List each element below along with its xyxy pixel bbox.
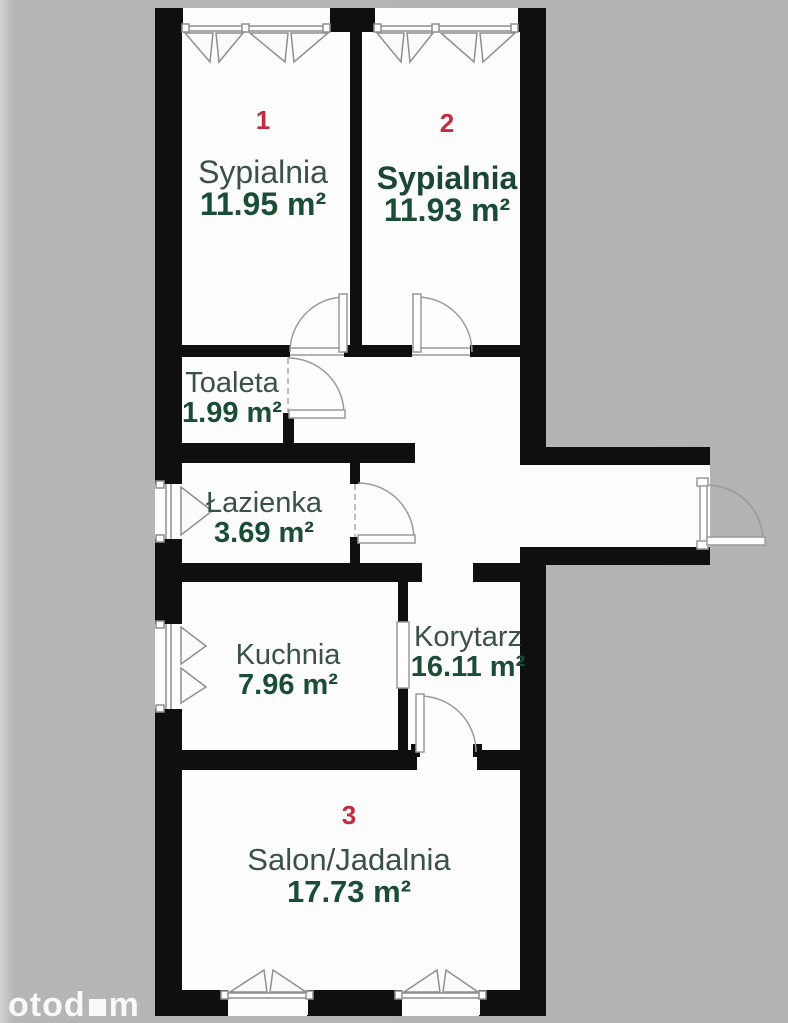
wall-left (155, 8, 182, 484)
wall-top (330, 8, 375, 32)
wall-kitchen-corridor (398, 688, 408, 752)
otodom-watermark: otodm (8, 988, 140, 1022)
floor-plan-drawing (0, 0, 788, 1023)
floor-areas (155, 8, 710, 1016)
wall-bedrooms-bottom (344, 345, 412, 357)
wall-vestibule-bottom (546, 547, 710, 565)
vestibule-passage (520, 465, 546, 547)
wall-kitchen-corridor (398, 582, 408, 622)
wall-salon-top (155, 750, 417, 770)
wall-salon-top (477, 750, 546, 770)
wall-bedrooms-bottom (470, 345, 520, 357)
watermark-text-suffix: m (109, 986, 140, 1023)
wall-bottom (155, 990, 228, 1016)
watermark-text-prefix: otod (8, 986, 86, 1023)
wall-right (520, 8, 546, 465)
floor-plan-image: 1 Sypialnia 11.95 m² 2 Sypialnia 11.93 m… (0, 0, 788, 1023)
door-entrance (697, 478, 765, 549)
wall-bedrooms-bottom (182, 345, 290, 357)
wall-bottom (307, 990, 402, 1016)
wall-vestibule-top (546, 447, 710, 465)
wall-bedroom-divider (350, 32, 362, 345)
wall-right (520, 547, 546, 1016)
wall-toilet-bathroom (155, 443, 415, 463)
wall-hall-bottom (155, 563, 422, 582)
wall-bottom (479, 990, 546, 1016)
wall-bathroom-right (350, 463, 360, 484)
wall-hall-bottom (473, 563, 546, 582)
door-jamb-mark (473, 744, 482, 757)
otodom-square-icon (89, 999, 106, 1016)
opening-kitchen (397, 622, 409, 688)
